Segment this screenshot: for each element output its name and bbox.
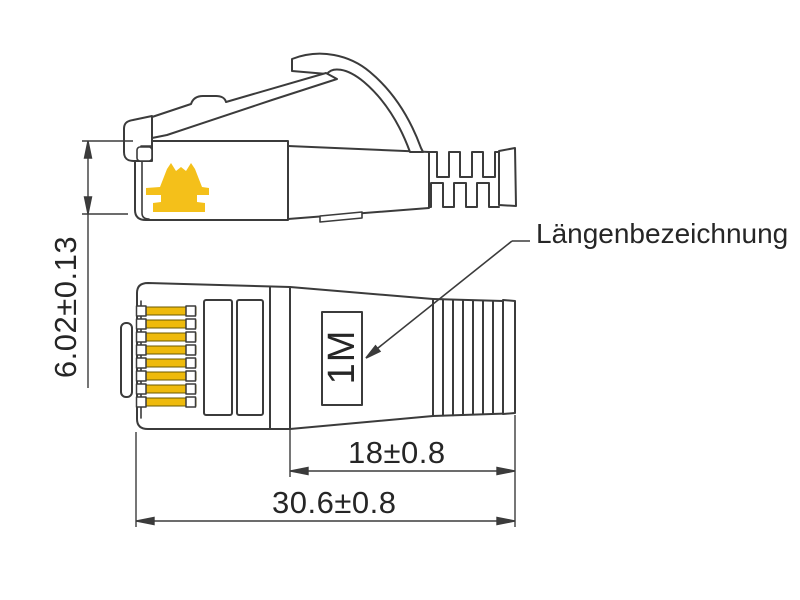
technical-drawing-rj45-plug: 6.02±0.13 1M Längenbezeichnung 18±0.8 30… [0, 0, 800, 600]
drawing-linework [0, 0, 800, 600]
arrowhead-right [497, 518, 515, 525]
arrowhead-up [85, 141, 92, 158]
rear-taper-top [290, 287, 433, 299]
side-view-drawing [124, 54, 516, 222]
boot-end-cap-side [499, 148, 516, 206]
length-marking-text: 1M [321, 302, 363, 412]
body-slot [237, 300, 263, 415]
dimension-boot-length: 18±0.8 [348, 436, 446, 470]
dimension-total-length: 30.6±0.8 [272, 486, 396, 520]
arrowhead-down [85, 197, 92, 214]
leader-arrowhead [366, 346, 380, 358]
latch-hook-tip [137, 147, 152, 161]
arrowhead-left [136, 518, 154, 525]
body-slot [204, 300, 232, 415]
arrowhead-left [290, 468, 308, 475]
boot-end-cap-bottom [503, 300, 515, 414]
latch-tip-bottom [121, 323, 132, 397]
snag-protection-tab [292, 54, 423, 152]
rear-taper-bottom [290, 416, 433, 429]
strain-relief-boot-side [429, 148, 516, 207]
latch-arm [152, 73, 337, 138]
arrowhead-right [497, 468, 515, 475]
bottom-view-drawing [121, 283, 515, 429]
dimension-plug-height: 6.02±0.13 [49, 222, 83, 392]
strain-relief-boot-bottom [433, 299, 515, 416]
bottom-tab-notch [320, 212, 362, 222]
length-designation-label: Längenbezeichnung [536, 219, 788, 250]
